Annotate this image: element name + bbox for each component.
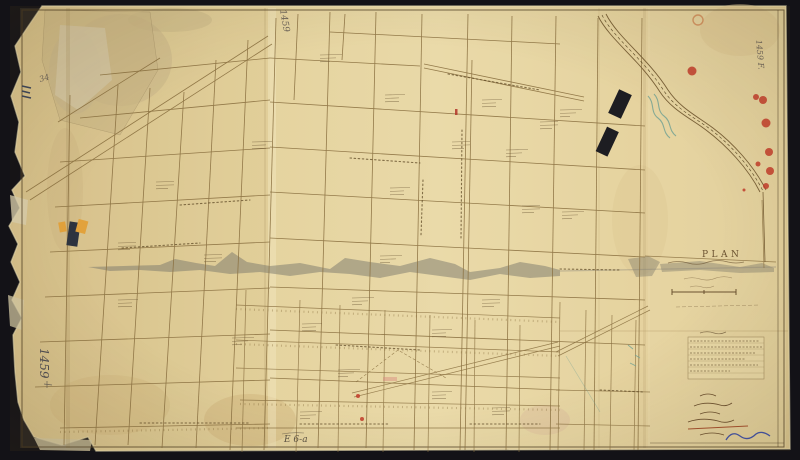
map-scan: PLAN [0, 0, 800, 460]
vignette-shading [10, 6, 790, 451]
antique-plan-map: PLAN [0, 0, 800, 460]
